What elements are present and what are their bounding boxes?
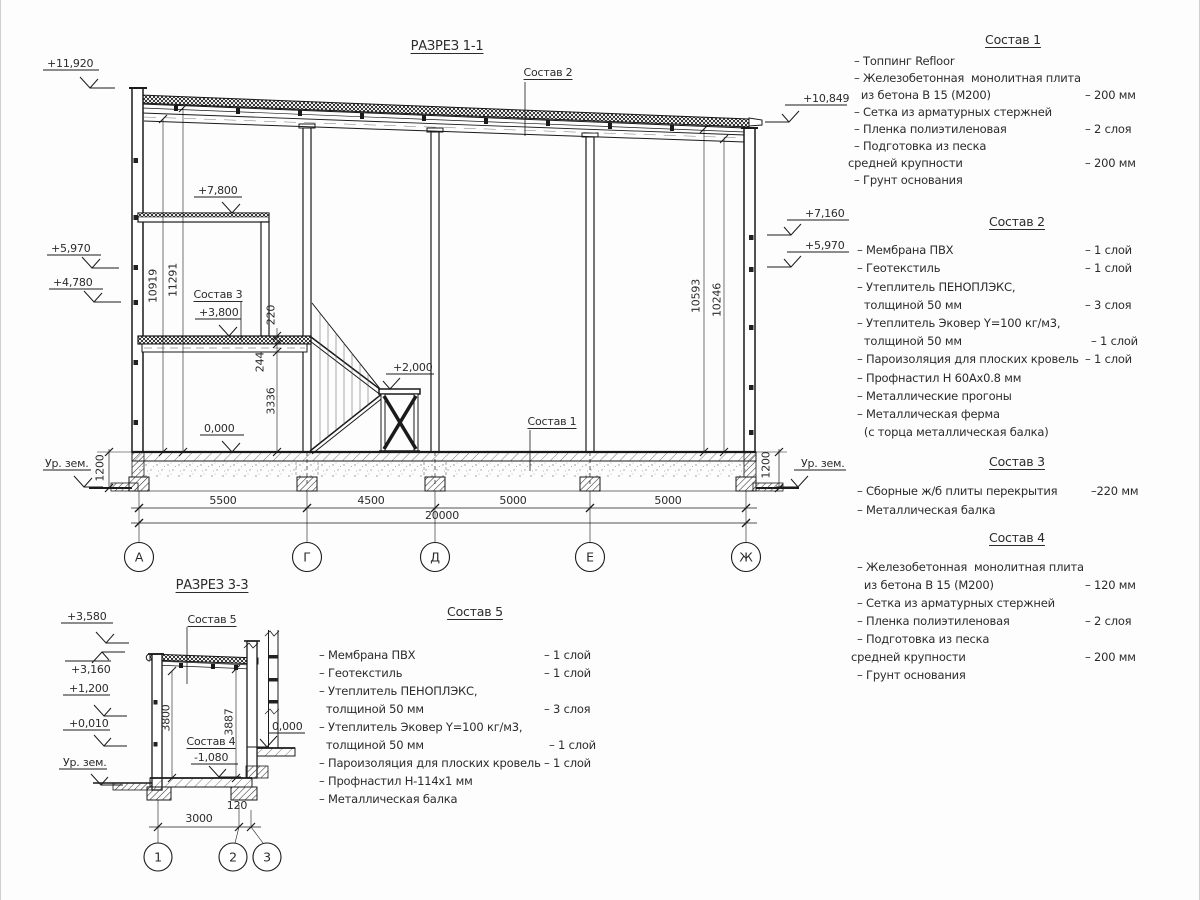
callout-small-floor-composition: Состав 4: [187, 735, 236, 748]
composition-5-row: – Мембрана ПВХ: [319, 649, 415, 662]
vdim-slab-220: 220: [265, 305, 278, 325]
composition-2-row-value: – 1 слой: [1085, 262, 1132, 275]
composition-1-row: – Железобетонная монолитная плита: [854, 72, 1081, 85]
vdim-ground-right-1200: 1200: [760, 451, 773, 478]
composition-5-row-value: – 1 слой: [544, 757, 591, 770]
composition-4-row: – Железобетонная монолитная плита: [857, 561, 1084, 574]
ground-level-label-left: Ур. зем.: [45, 457, 89, 470]
composition-2-row: толщиной 50 мм: [857, 299, 962, 312]
callout-roof-composition: Состав 2: [524, 66, 573, 79]
composition-4-row: – Подготовка из песка: [857, 633, 989, 646]
composition-5-row-value: – 1 слой: [549, 739, 596, 752]
composition-4-row-value: – 120 мм: [1085, 579, 1136, 592]
composition-5-row: – Геотекстиль: [319, 667, 402, 680]
elevation-floor-zero: 0,000: [204, 422, 235, 435]
composition-4-row-value: – 2 слоя: [1085, 615, 1131, 628]
callout-mezzanine-composition: Состав 3: [194, 288, 243, 301]
composition-2-row: – Утеплитель ПЕНОПЛЭКС,: [857, 281, 1015, 294]
composition-4-row: средней крупности: [851, 651, 966, 664]
vdim-right-outer: 10246: [711, 283, 724, 317]
composition-1-row-value: – 200 мм: [1085, 89, 1136, 102]
hdim-a-g: 5500: [209, 494, 236, 507]
composition-4-row: – Пленка полиэтиленовая: [857, 615, 1010, 628]
composition-1-row-value: – 200 мм: [1085, 157, 1136, 170]
elevation-small-1200: +1,200: [69, 682, 109, 695]
elevation-mezz-3800: +3,800: [199, 306, 239, 319]
vdim-ground-left-1200: 1200: [94, 454, 107, 481]
composition-2-row: – Пароизоляция для плоских кровель: [857, 353, 1079, 366]
elevation-left-5970: +5,970: [51, 242, 91, 255]
axis-bubble-3: 3: [263, 851, 271, 864]
composition-5-row: толщиной 50 мм: [319, 703, 424, 716]
drawing-sheet: РАЗРЕЗ 1-1 РАЗРЕЗ 3-3 Состав 2 Состав 1 …: [0, 0, 1200, 900]
composition-1-row: – Грунт основания: [854, 174, 963, 187]
elevation-right-7160: +7,160: [805, 207, 845, 220]
composition-2-row-value: – 1 слой: [1085, 244, 1132, 257]
hdim-small-span: 3000: [185, 812, 212, 825]
hdim-small-offset: 120: [227, 799, 247, 812]
composition-3-row: – Металлическая балка: [857, 504, 995, 517]
callout-floor-composition: Состав 1: [528, 415, 577, 428]
elevation-left-4780: +4,780: [53, 276, 93, 289]
composition-5-row-value: – 3 слоя: [544, 703, 590, 716]
composition-2-row-value: – 3 слоя: [1085, 299, 1131, 312]
composition-1-row: – Сетка из арматурных стержней: [854, 106, 1052, 119]
hdim-e-j: 5000: [654, 494, 681, 507]
composition-4-row: из бетона В 15 (М200): [857, 579, 994, 592]
elevation-small-top: +3,580: [67, 610, 107, 623]
composition-3-row-value: –220 мм: [1091, 485, 1138, 498]
composition-2-row-value: – 1 слой: [1085, 353, 1132, 366]
elevation-small-3160: +3,160: [71, 663, 111, 676]
hdim-g-d: 4500: [357, 494, 384, 507]
composition-2-row: – Мембрана ПВХ: [857, 244, 953, 257]
callout-small-roof-composition: Состав 5: [188, 613, 237, 626]
composition-4-title: Состав 4: [989, 531, 1045, 544]
composition-1-row: – Подготовка из песка: [854, 140, 986, 153]
composition-2-row: – Утеплитель Эковер Y=100 кг/м3,: [857, 317, 1060, 330]
elevation-small-0010: +0,010: [69, 717, 109, 730]
vdim-small-left-3800: 3800: [160, 704, 173, 731]
composition-5-row: – Профнастил Н-114х1 мм: [319, 775, 473, 788]
elevation-landing-2000: +2,000: [393, 361, 433, 374]
hdim-total: 20000: [425, 509, 459, 522]
vdim-small-right-3887: 3887: [223, 708, 236, 735]
composition-2-row: (с торца металлическая балка): [857, 426, 1049, 439]
composition-4-row-value: – 200 мм: [1085, 651, 1136, 664]
composition-1-row: – Топпинг Refloor: [854, 55, 954, 68]
composition-1-row: – Пленка полиэтиленовая: [854, 123, 1007, 136]
section1-title: РАЗРЕЗ 1-1: [411, 40, 484, 53]
axis-bubble-1: 1: [154, 851, 162, 864]
composition-5-row: – Утеплитель Эковер Y=100 кг/м3,: [319, 721, 522, 734]
composition-2-row-value: – 1 слой: [1091, 335, 1138, 348]
axis-bubble-2: 2: [229, 851, 237, 864]
axis-bubble-j: Ж: [739, 551, 752, 564]
vdim-right-inner: 10593: [690, 279, 703, 313]
composition-2-row: – Профнастил Н 60Ах0.8 мм: [857, 372, 1021, 385]
vdim-left-outer: 11291: [167, 263, 180, 297]
composition-1-row: из бетона В 15 (М200): [854, 89, 991, 102]
axis-bubble-d: Д: [430, 551, 440, 564]
elevation-mezz-7800: +7,800: [198, 184, 238, 197]
axis-bubble-g: Г: [303, 551, 310, 564]
vdim-under-mezz-3336: 3336: [265, 387, 278, 414]
elevation-small-zero: 0,000: [272, 720, 303, 733]
ground-level-label-right: Ур. зем.: [801, 457, 845, 470]
elevation-small-pit: -1,080: [194, 751, 228, 764]
composition-5-title: Состав 5: [447, 605, 503, 618]
composition-5-row-value: – 1 слой: [544, 649, 591, 662]
composition-1-title: Состав 1: [985, 33, 1041, 46]
section3-title: РАЗРЕЗ 3-3: [176, 579, 249, 592]
vdim-beam-244: 244: [254, 352, 267, 372]
composition-5-row: – Пароизоляция для плоских кровель: [319, 757, 541, 770]
composition-2-row: – Металлическая ферма: [857, 408, 1000, 421]
ground-level-label-small: Ур. зем.: [63, 756, 107, 769]
composition-1-row-value: – 2 слоя: [1085, 123, 1131, 136]
section-linework: [1, 0, 1200, 900]
vdim-left-inner: 10919: [147, 269, 160, 303]
composition-5-row: – Утеплитель ПЕНОПЛЭКС,: [319, 685, 477, 698]
composition-2-row: толщиной 50 мм: [857, 335, 962, 348]
composition-2-row: – Металлические прогоны: [857, 390, 1012, 403]
hdim-d-e: 5000: [499, 494, 526, 507]
axis-bubble-e: Е: [586, 551, 594, 564]
elevation-left-top: +11,920: [47, 57, 93, 70]
composition-2-row: – Геотекстиль: [857, 262, 940, 275]
composition-1-row: средней крупности: [848, 157, 963, 170]
composition-5-row: – Металлическая балка: [319, 793, 457, 806]
composition-4-row: – Грунт основания: [857, 669, 966, 682]
composition-5-row-value: – 1 слой: [544, 667, 591, 680]
composition-4-row: – Сетка из арматурных стержней: [857, 597, 1055, 610]
axis-bubble-a: А: [135, 551, 143, 564]
composition-5-row: толщиной 50 мм: [319, 739, 424, 752]
composition-3-row: – Сборные ж/б плиты перекрытия: [857, 485, 1057, 498]
composition-3-title: Состав 3: [989, 455, 1045, 468]
elevation-right-5970: +5,970: [805, 239, 845, 252]
composition-2-title: Состав 2: [989, 215, 1045, 228]
elevation-right-top: +10,849: [803, 92, 849, 105]
